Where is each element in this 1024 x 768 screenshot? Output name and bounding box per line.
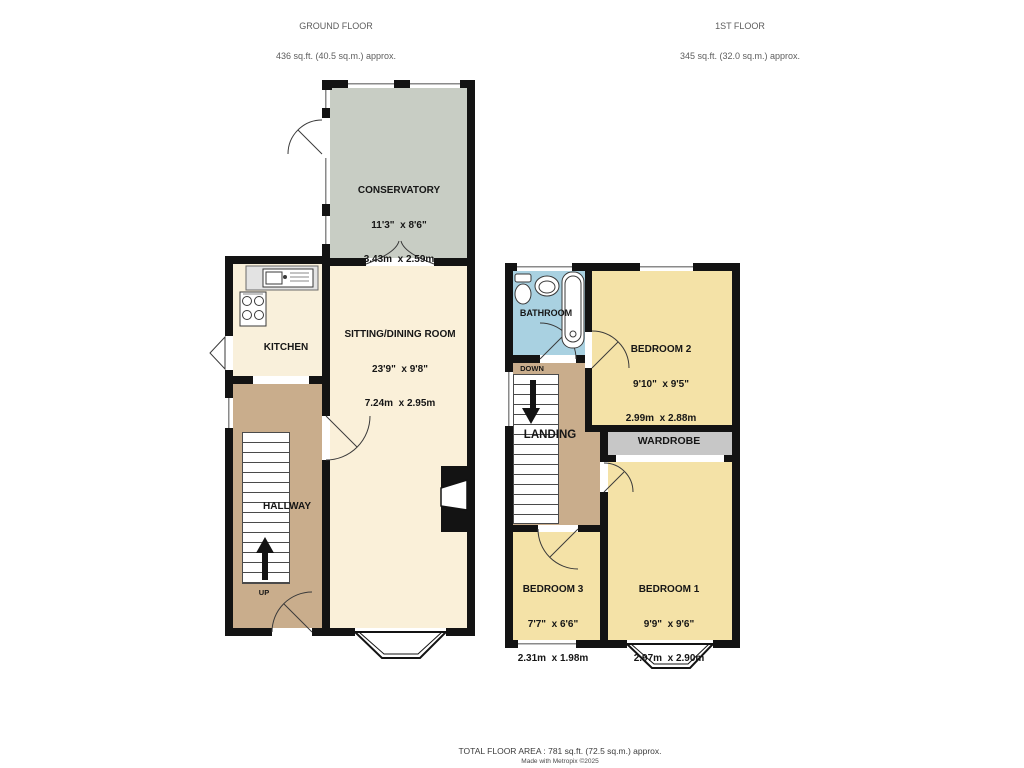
bedroom2-door-opening xyxy=(585,332,592,368)
hallway-window xyxy=(225,398,233,428)
first-floor-area: 345 sq.ft. (32.0 sq.m.) approx. xyxy=(680,51,800,61)
kitchen-hallway-opening xyxy=(253,376,309,384)
bedroom2-window xyxy=(640,263,693,271)
conservatory-label: CONSERVATORY 11'3" x 8'6" 3.43m x 2.59m xyxy=(358,162,440,289)
bedroom1-label: BEDROOM 1 9'9" x 9'6" 2.97m x 2.90m xyxy=(634,561,705,688)
room-dims-imperial: 23'9" x 9'8" xyxy=(344,364,455,376)
landing-label: LANDING xyxy=(524,430,576,442)
room-name: SITTING/DINING ROOM xyxy=(344,329,455,341)
bedroom3-door-opening xyxy=(538,525,578,532)
bathroom-door-opening xyxy=(540,355,576,363)
room-dims-imperial: 7'7" x 6'6" xyxy=(518,619,589,631)
room-dims-imperial: 9'9" x 9'6" xyxy=(634,619,705,631)
room-dims-metric: 7.24m x 2.95m xyxy=(344,398,455,410)
ground-floor-title: GROUND FLOOR xyxy=(276,21,396,31)
room-dims-metric: 2.99m x 2.88m xyxy=(626,413,697,425)
room-kitchen xyxy=(233,264,322,376)
first-floor-title: 1ST FLOOR xyxy=(680,21,800,31)
room-name: BEDROOM 1 xyxy=(634,584,705,596)
credit-line: Made with Metropix ©2025 xyxy=(521,757,598,767)
sitting-dining-label: SITTING/DINING ROOM 23'9" x 9'8" 7.24m x… xyxy=(344,306,455,433)
front-door-opening xyxy=(272,628,312,636)
conservatory-pillar xyxy=(394,80,410,88)
stairs-down-label: DOWN xyxy=(520,363,544,375)
room-dims-imperial: 9'10" x 9'5" xyxy=(626,379,697,391)
bedroom2-label: BEDROOM 2 9'10" x 9'5" 2.99m x 2.88m xyxy=(626,321,697,448)
room-name: CONSERVATORY xyxy=(358,185,440,197)
room-dims-imperial: 11'3" x 8'6" xyxy=(358,220,440,232)
room-dims-metric: 2.97m x 2.90m xyxy=(634,653,705,665)
conservatory-pillar xyxy=(322,204,330,216)
ground-floor-header: GROUND FLOOR 436 sq.ft. (40.5 sq.m.) app… xyxy=(276,1,396,81)
total-floor-area: TOTAL FLOOR AREA : 781 sq.ft. (72.5 sq.m… xyxy=(459,746,662,756)
door-arc-icon xyxy=(288,120,322,154)
hallway-sitting-door-opening xyxy=(322,416,330,460)
conservatory-door-opening xyxy=(322,118,330,158)
kitchen-label: KITCHEN xyxy=(264,342,308,354)
hallway-label: HALLWAY xyxy=(263,501,311,513)
wardrobe-label: WARDROBE xyxy=(638,436,700,448)
conservatory-corner-pillar xyxy=(322,80,332,90)
bay-window-opening-ground xyxy=(355,628,446,636)
chimney-breast xyxy=(441,466,467,532)
conservatory-pillar xyxy=(332,80,348,88)
room-dims-metric: 2.31m x 1.98m xyxy=(518,653,589,665)
floorplan-canvas: GROUND FLOOR 436 sq.ft. (40.5 sq.m.) app… xyxy=(0,0,1024,768)
room-dims-metric: 3.43m x 2.59m xyxy=(358,254,440,266)
conservatory-pillar xyxy=(322,244,330,258)
bathroom-window xyxy=(517,263,572,271)
bedroom3-label: BEDROOM 3 7'7" x 6'6" 2.31m x 1.98m xyxy=(518,561,589,688)
room-landing-ext xyxy=(585,432,600,525)
room-name: BEDROOM 3 xyxy=(518,584,589,596)
first-floor-header: 1ST FLOOR 345 sq.ft. (32.0 sq.m.) approx… xyxy=(680,1,800,81)
bathroom-label: BATHROOM xyxy=(520,308,572,320)
bedroom1-door-opening xyxy=(600,462,608,492)
stairs-up-label: UP xyxy=(259,587,269,599)
side-door-icon xyxy=(210,337,225,369)
room-name: BEDROOM 2 xyxy=(626,344,697,356)
stairs-down xyxy=(513,374,559,524)
kitchen-side-door-opening xyxy=(225,336,233,370)
wardrobe-door-front xyxy=(616,455,724,462)
ground-floor-area: 436 sq.ft. (40.5 sq.m.) approx. xyxy=(276,51,396,61)
landing-window xyxy=(505,372,513,426)
